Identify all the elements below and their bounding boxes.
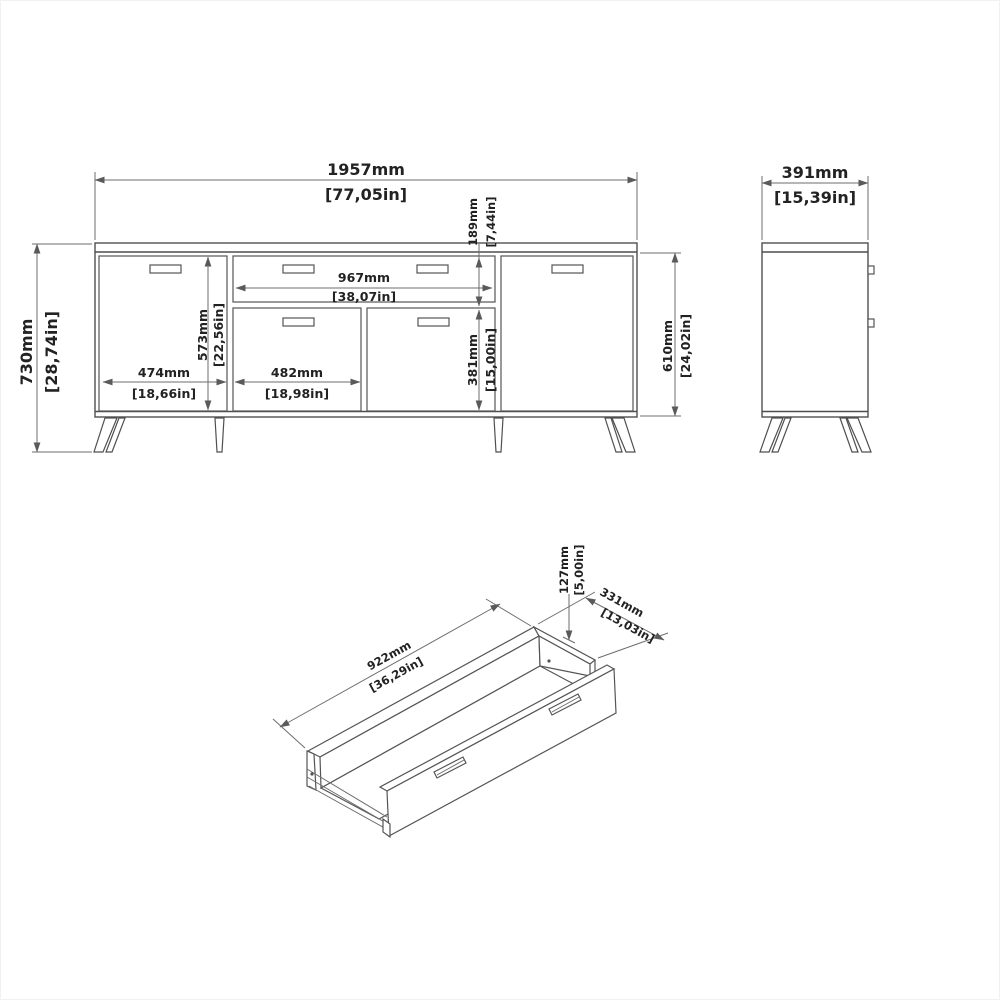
dim-overall-height-in: [28,74in] — [42, 311, 61, 393]
dim-top-drawer-height-mm: 189mm — [466, 198, 480, 246]
front-leg-midleft — [215, 418, 224, 452]
dim-drawer-height-mm: 127mm — [557, 546, 571, 594]
side-hinge-tab-lower — [868, 319, 874, 327]
dim-center-door-width-in: [18,98in] — [265, 386, 329, 401]
front-leg-midright — [494, 418, 503, 452]
dim-overall-width-mm: 1957mm — [327, 160, 405, 179]
dim-overall-height: 730mm [28,74in] — [17, 244, 92, 452]
dim-overall-height-mm: 730mm — [17, 319, 36, 386]
dim-overall-width-in: [77,05in] — [325, 185, 407, 204]
sideboard-technical-drawing: 1957mm [77,05in] 730mm [28,74in] 189mm [… — [0, 0, 1000, 1000]
dim-depth-mm: 391mm — [782, 163, 849, 182]
dim-lower-door-height-in: [15,00in] — [483, 328, 498, 392]
front-view: 1957mm [77,05in] 730mm [28,74in] 189mm [… — [17, 160, 693, 452]
dim-depth: 391mm [15,39in] — [762, 163, 868, 240]
dim-lower-door-height-mm: 381mm — [465, 334, 480, 386]
drawer-screw-hole-left — [310, 772, 313, 775]
side-hinge-tab-upper — [868, 266, 874, 274]
drawer-left-handle — [283, 265, 314, 273]
dim-drawer-width-mm: 967mm — [338, 270, 390, 285]
dim-inner-height-mm: 573mm — [195, 309, 210, 361]
right-door-handle — [552, 265, 583, 273]
drawer-iso-view: 922mm [36,29in] 331mm [13,03in] 127mm [5… — [273, 544, 668, 837]
page-frame — [1, 1, 1000, 1000]
right-door-panel — [501, 256, 633, 411]
drawer-right-handle — [417, 265, 448, 273]
dim-left-door-width-in: [18,66in] — [132, 386, 196, 401]
drawer-left-end-cap — [307, 751, 316, 790]
dim-center-door-width-mm: 482mm — [271, 365, 323, 380]
dim-body-height-mm: 610mm — [660, 320, 675, 372]
dim-left-door-width-mm: 474mm — [138, 365, 190, 380]
drawing-page: 1957mm [77,05in] 730mm [28,74in] 189mm [… — [0, 0, 1000, 1000]
dim-body-height-in: [24,02in] — [678, 314, 693, 378]
dim-drawer-width-in: [38,07in] — [332, 289, 396, 304]
lower-right-door-handle — [418, 318, 449, 326]
dim-body-height: 610mm [24,02in] — [640, 253, 693, 416]
dim-drawer-height: 127mm [5,00in] — [557, 544, 586, 643]
dim-inner-height-in: [22,56in] — [211, 303, 226, 367]
dim-top-drawer-height-in: [7,44in] — [484, 196, 498, 247]
left-door-handle — [150, 265, 181, 273]
dim-overall-width: 1957mm [77,05in] — [95, 160, 637, 240]
dim-drawer-height-in: [5,00in] — [572, 544, 586, 595]
side-view: 391mm [15,39in] — [760, 163, 874, 452]
side-outline — [762, 243, 868, 417]
dim-depth-in: [15,39in] — [774, 188, 856, 207]
drawer-screw-hole-back — [547, 659, 550, 662]
lower-left-door-handle — [283, 318, 314, 326]
